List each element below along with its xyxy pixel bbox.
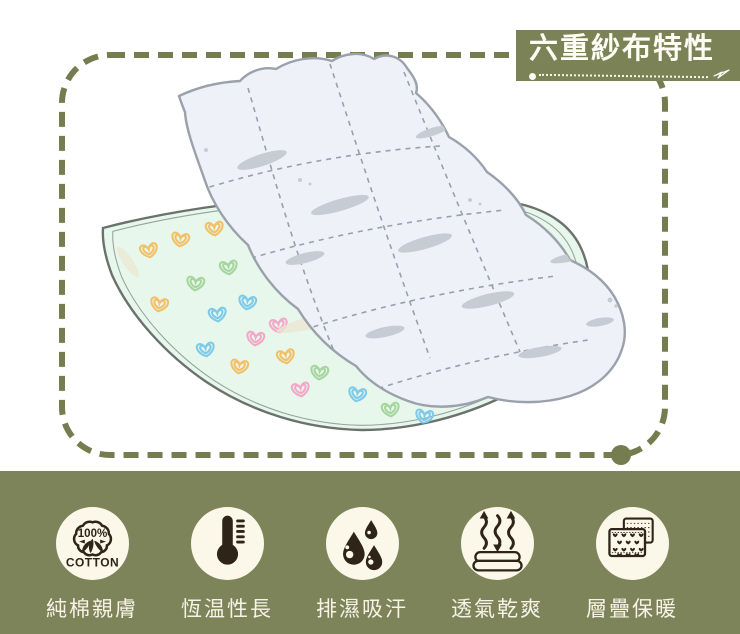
- page-title: 六重紗布特性: [529, 33, 730, 66]
- air-waves: [481, 516, 513, 549]
- border-end-dot: [611, 445, 631, 465]
- feature-cotton: 100% COTTON 純棉親膚: [32, 507, 152, 634]
- svg-text:COTTON: COTTON: [65, 556, 118, 570]
- breathable-blanket-icon: [461, 507, 534, 580]
- layered-sheets-icon: [596, 507, 669, 580]
- svg-text:100%: 100%: [77, 528, 106, 540]
- cotton-leaf: [79, 539, 106, 553]
- feature-moisture: 排濕吸汗: [302, 507, 422, 634]
- feature-label: 排濕吸汗: [316, 593, 408, 623]
- feature-label: 層疊保暖: [586, 593, 678, 623]
- drop-medium: [365, 545, 381, 570]
- feature-label: 透氣乾爽: [451, 593, 543, 623]
- front-sheet: [609, 529, 645, 557]
- feature-label: 純棉親膚: [46, 593, 138, 623]
- feature-label: 恆温性長: [181, 593, 273, 623]
- page: 六重紗布特性 100%: [0, 0, 740, 634]
- feature-band: 100% COTTON 純棉親膚: [0, 471, 740, 634]
- folded-blanket: [473, 552, 521, 570]
- feature-thermo: 恆温性長: [167, 507, 287, 634]
- badge-arrow-icon: [710, 67, 730, 85]
- feature-layers: 層疊保暖: [572, 507, 692, 634]
- water-drops-icon: [326, 507, 399, 580]
- thermometer-icon: [191, 507, 264, 580]
- drop-large: [343, 532, 365, 565]
- badge-dot-icon: [529, 73, 536, 80]
- feature-breathable: 透氣乾爽: [437, 507, 557, 634]
- drop-small: [364, 520, 376, 539]
- title-badge: 六重紗布特性: [516, 30, 740, 81]
- cotton-100-icon: 100% COTTON: [56, 507, 129, 580]
- badge-dotted-line: [539, 74, 708, 78]
- badge-underline: [529, 67, 730, 85]
